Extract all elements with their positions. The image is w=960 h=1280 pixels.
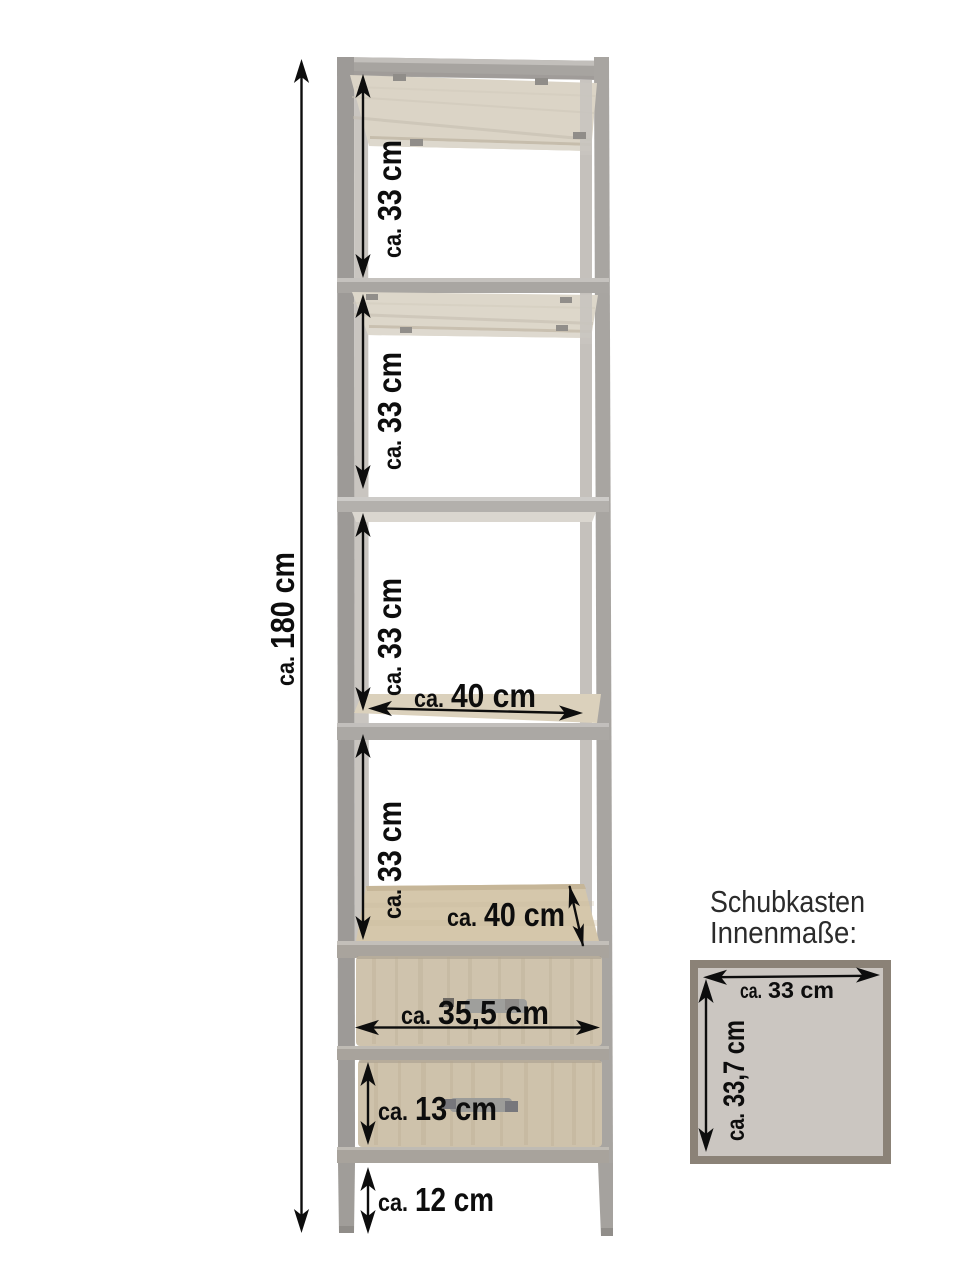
svg-text:ca.33,7 cm: ca.33,7 cm xyxy=(718,1020,751,1141)
svg-text:Schubkasten: Schubkasten xyxy=(710,884,865,919)
svg-text:ca.33 cm: ca.33 cm xyxy=(740,977,834,1003)
svg-text:Innenmaße:: Innenmaße: xyxy=(710,915,857,950)
